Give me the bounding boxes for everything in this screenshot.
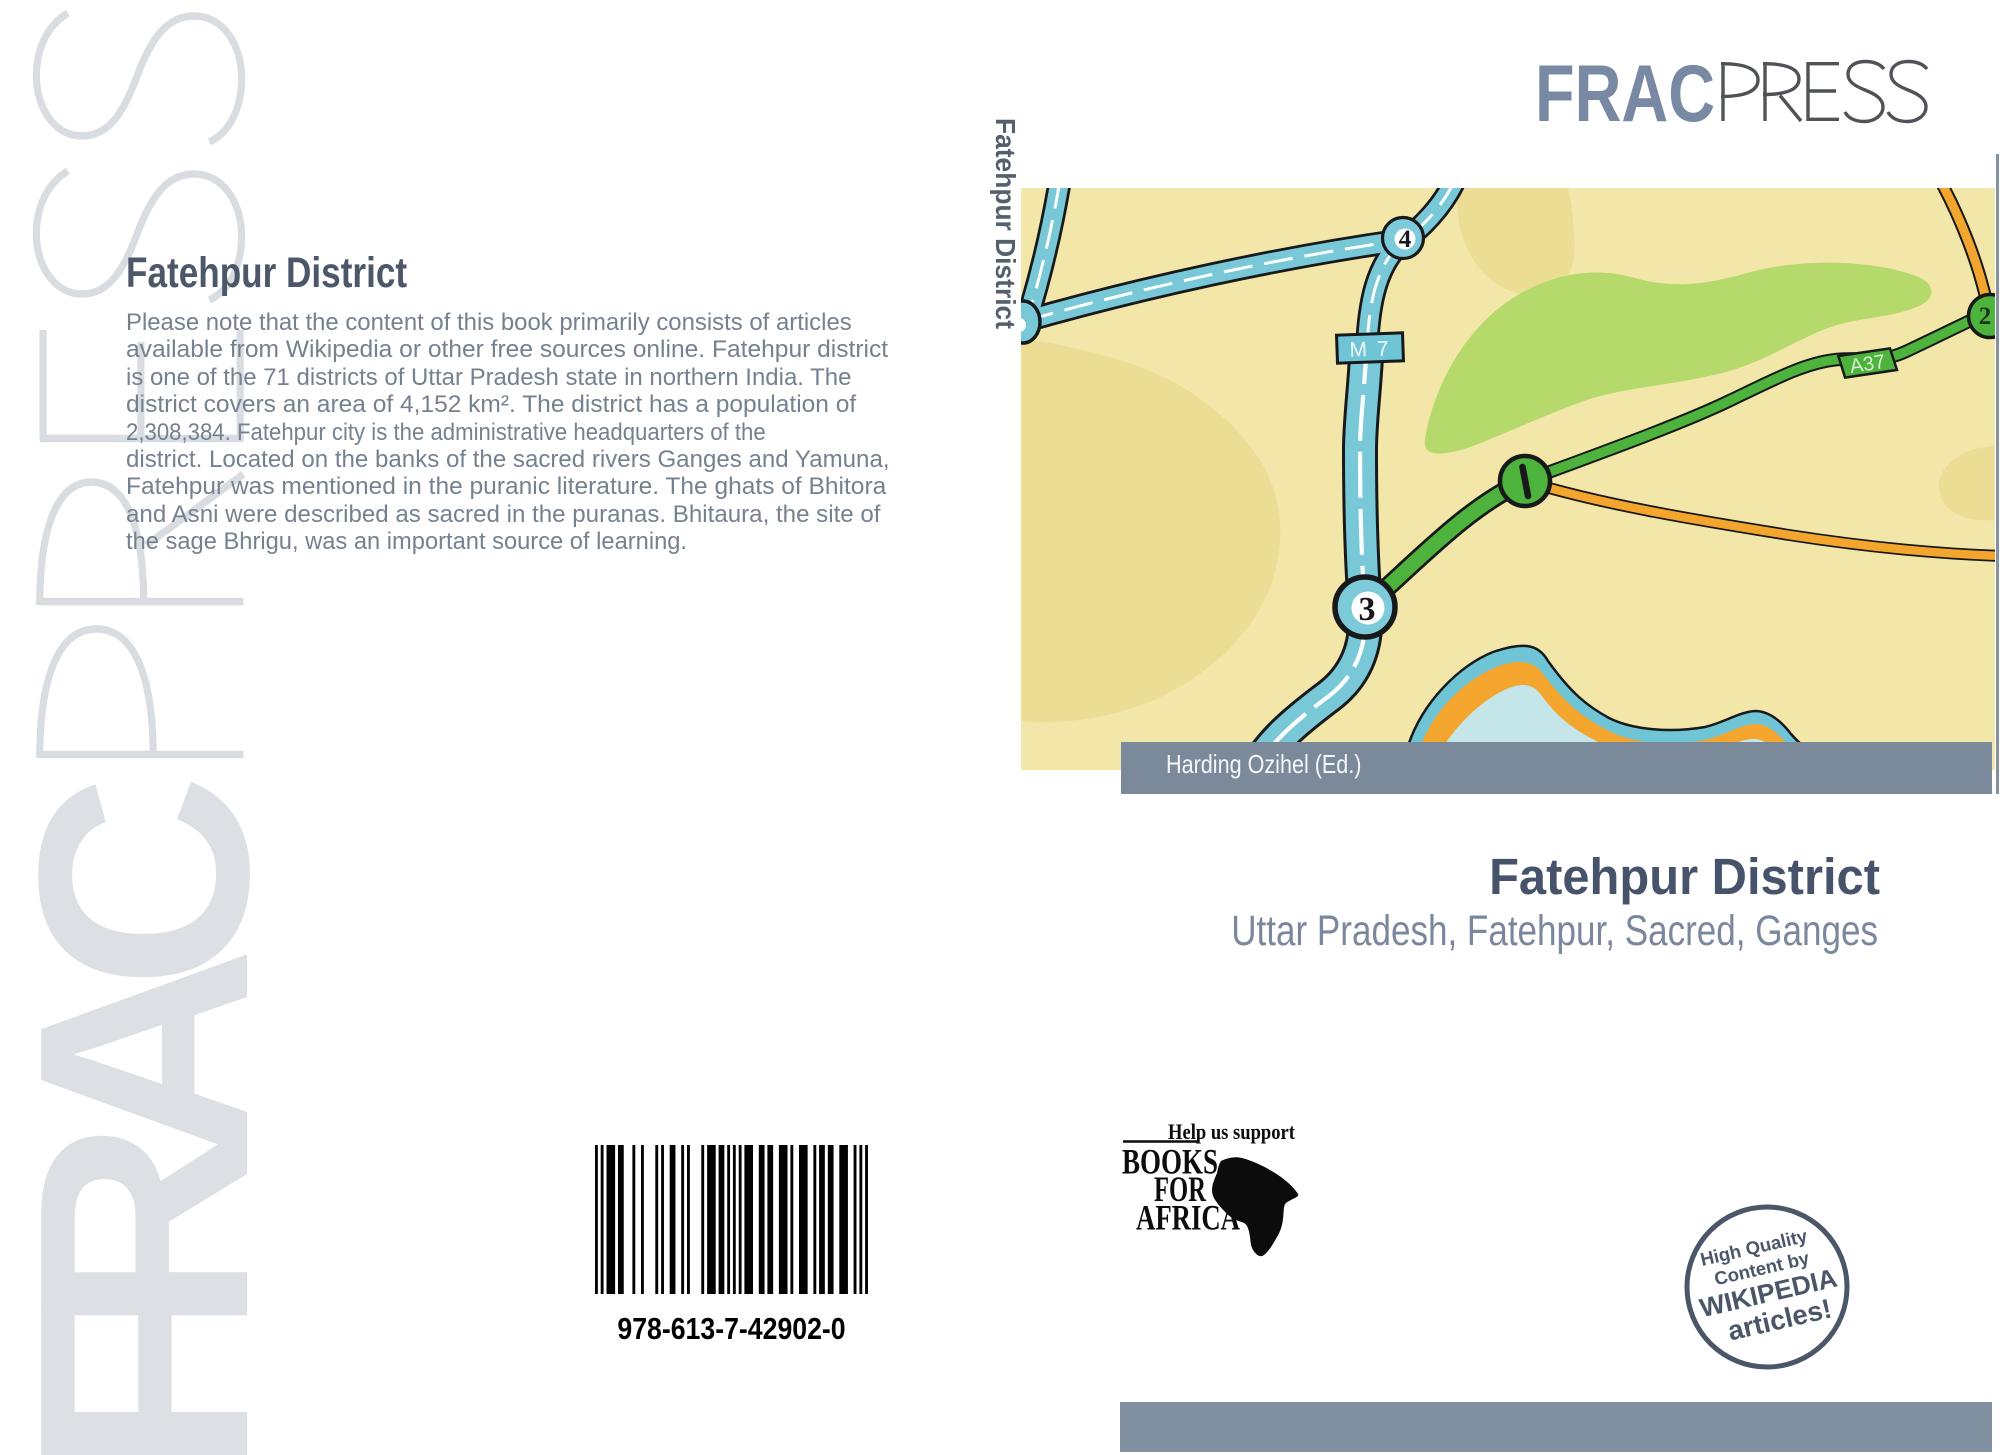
- svg-text:Help us support: Help us support: [1168, 1119, 1296, 1144]
- svg-text:M 7: M 7: [1349, 337, 1391, 361]
- svg-text:FRAC: FRAC: [1535, 49, 1715, 139]
- svg-text:4: 4: [1399, 226, 1412, 253]
- svg-text:2: 2: [1979, 303, 1992, 330]
- svg-text:3: 3: [1359, 591, 1376, 628]
- svg-text:Fatehpur District: Fatehpur District: [990, 118, 1021, 329]
